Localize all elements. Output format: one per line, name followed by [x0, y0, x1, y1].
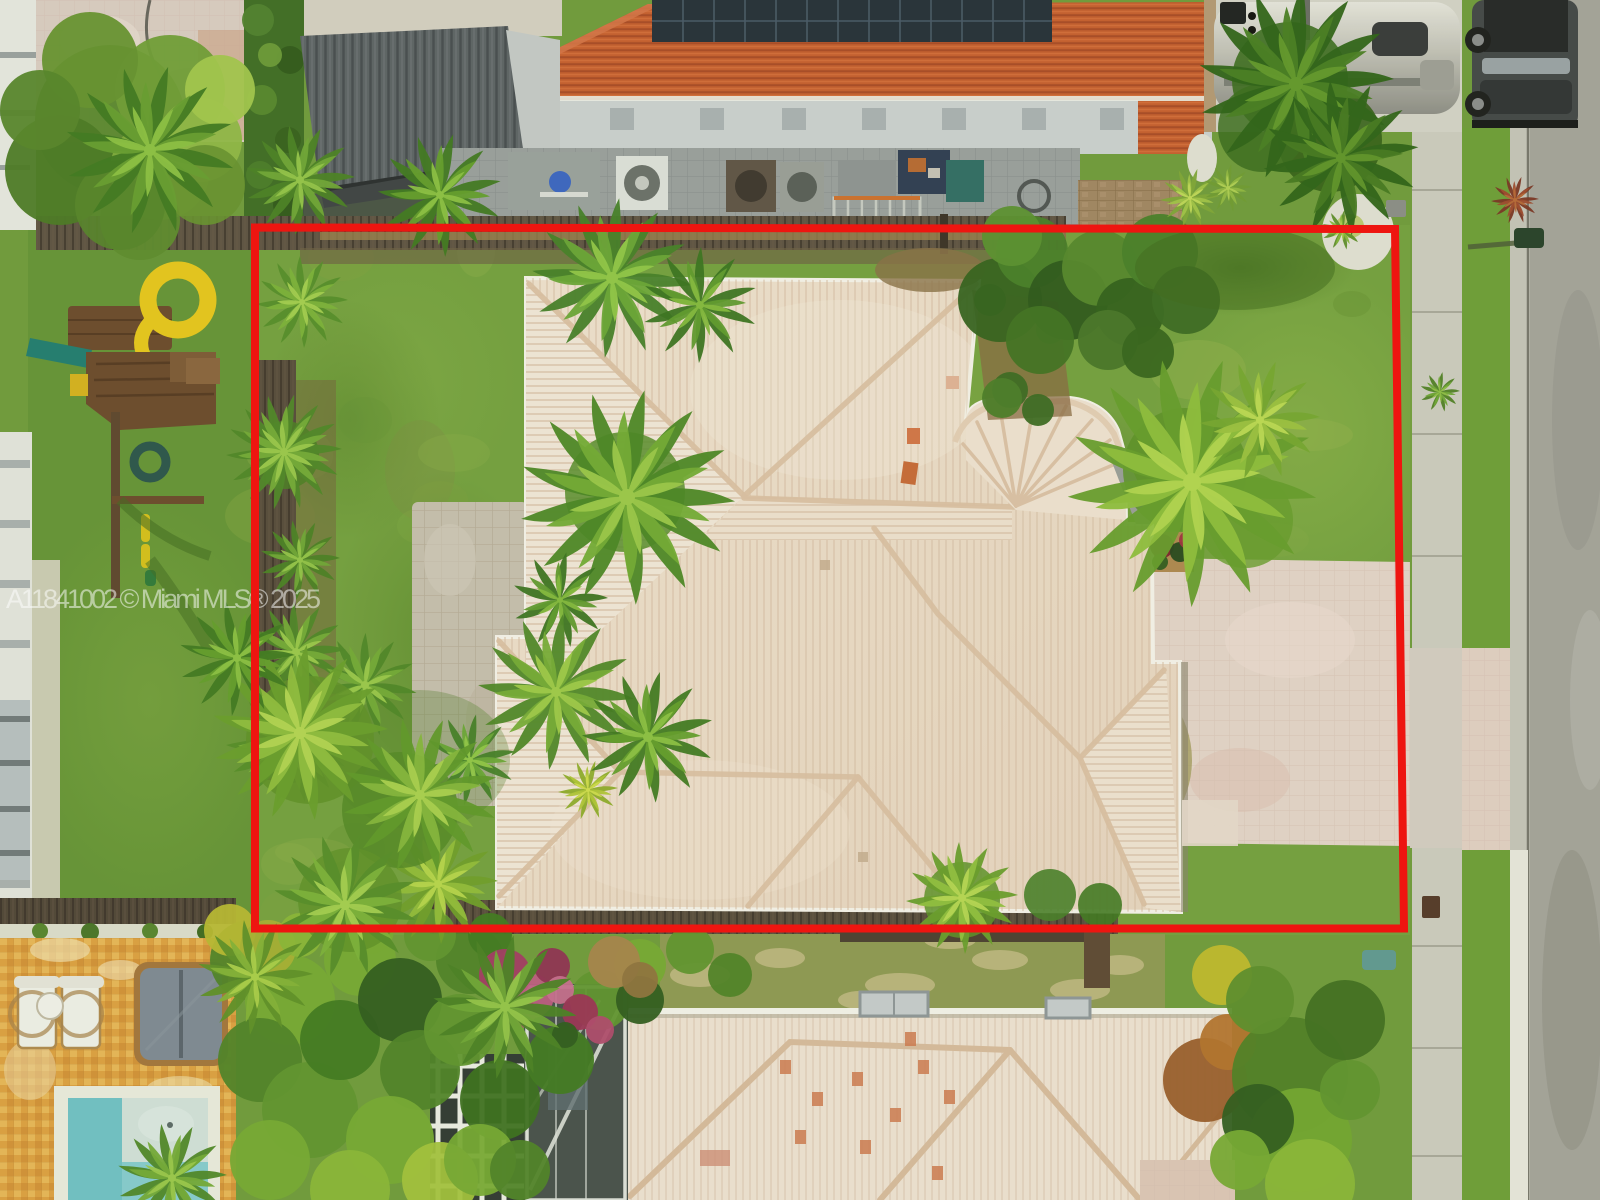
svg-text:A11841002 © Miami MLS® 2025: A11841002 © Miami MLS® 2025	[6, 584, 321, 614]
